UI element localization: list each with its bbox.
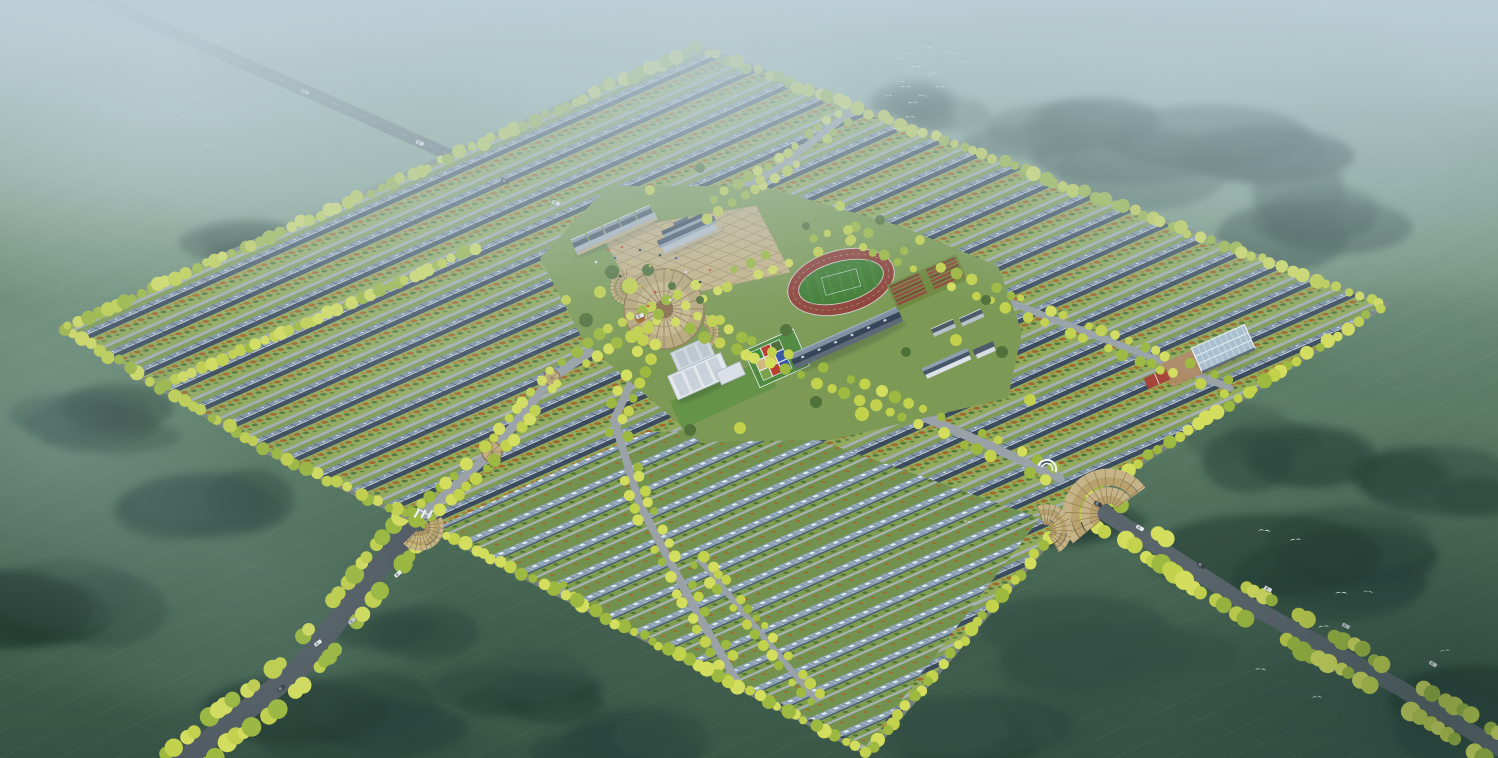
- aerial-masterplan-rendering: [0, 0, 1498, 758]
- horizon-mist: [0, 0, 1498, 300]
- rendering-stage: [0, 0, 1498, 758]
